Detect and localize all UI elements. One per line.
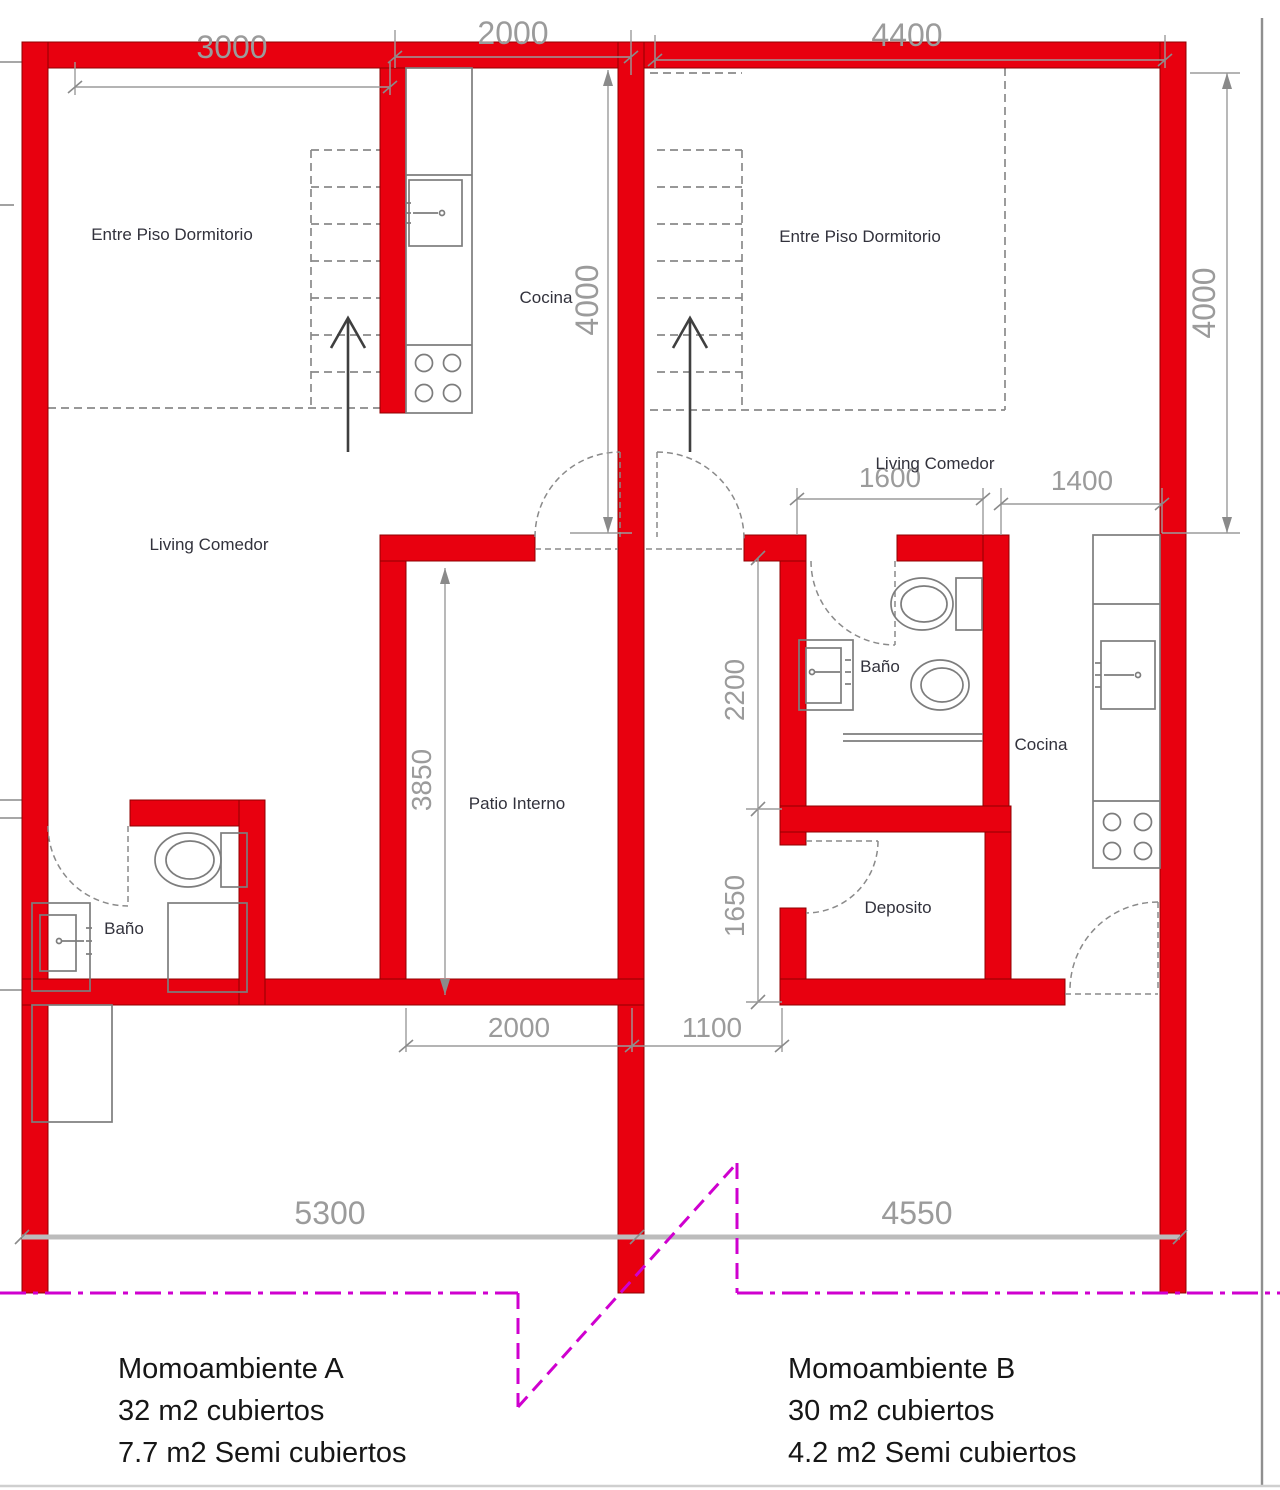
vanity-counter: [843, 734, 983, 741]
toilet-icon: [155, 833, 247, 887]
room-label-a-mezzanine: Entre Piso Dormitorio: [91, 225, 253, 244]
room-label-patio: Patio Interno: [469, 794, 565, 813]
door-b-entry: [646, 452, 744, 549]
dim-label: 5300: [294, 1195, 365, 1231]
room-label-b-living: Living Comedor: [875, 454, 994, 473]
unit-a-summary: Momoambiente A 32 m2 cubiertos 7.7 m2 Se…: [118, 1353, 407, 1469]
dim-totals: 5300 4550: [15, 1195, 1187, 1244]
wall-center-party: [618, 42, 644, 1293]
wall-b-bath-right: [983, 535, 1009, 832]
room-label-a-bath: Baño: [104, 919, 144, 938]
wall-right: [1160, 42, 1186, 1293]
room-label-b-storage: Deposito: [864, 898, 931, 917]
dim-label: 1400: [1051, 465, 1113, 496]
wall-a-kitchen: [380, 68, 406, 413]
dim-label: 3000: [196, 29, 267, 65]
stairs-up-arrow-icon: [673, 318, 707, 452]
unit-name: Momoambiente A: [118, 1353, 344, 1385]
stairs-up-arrow-icon: [331, 318, 365, 452]
unit-covered-area: 30 m2 cubiertos: [788, 1395, 994, 1427]
unit-semicovered-area: 4.2 m2 Semi cubiertos: [788, 1437, 1077, 1469]
floor-plan-drawing: 3000 2000 4400 4000: [0, 0, 1280, 1490]
wall-b-entry-stub: [744, 535, 806, 561]
door-a-entry: [535, 452, 620, 549]
unit-covered-area: 32 m2 cubiertos: [118, 1395, 324, 1427]
dim-label: 1650: [719, 875, 750, 937]
dim-label: 4000: [569, 264, 605, 335]
room-label-b-mezzanine: Entre Piso Dormitorio: [779, 227, 941, 246]
dim-label: 4550: [881, 1195, 952, 1231]
wall-a-bottom: [22, 979, 644, 1005]
bathroom-a-fixtures: [32, 833, 247, 992]
room-label-a-living: Living Comedor: [149, 535, 268, 554]
bidet-icon: [911, 660, 969, 710]
kitchen-counter-a: [405, 68, 472, 413]
stairs-b: [657, 150, 742, 452]
wall-a-patio-left: [380, 535, 406, 1005]
dim-label: 3850: [406, 749, 437, 811]
wall-b-storage-left-stub: [780, 832, 806, 845]
dim-label: 4400: [871, 17, 942, 53]
wall-b-divider: [780, 806, 1011, 832]
wall-a-patio-top: [380, 535, 535, 561]
dim-b-bath-depth: 2200 1650: [719, 551, 782, 1009]
room-label-a-kitchen: Cocina: [520, 288, 573, 307]
floor-plan-page: 3000 2000 4400 4000: [0, 0, 1280, 1490]
dim-label: 2200: [719, 659, 750, 721]
sink-icon: [799, 640, 853, 710]
unit-name: Momoambiente B: [788, 1353, 1015, 1385]
wall-b-bottom: [780, 979, 1065, 1005]
dim-b-kitchen-width: 1400: [994, 465, 1169, 535]
room-label-b-bath: Baño: [860, 657, 900, 676]
toilet-icon: [891, 578, 982, 630]
wall-b-bath-top: [897, 535, 983, 561]
unit-b-summary: Momoambiente B 30 m2 cubiertos 4.2 m2 Se…: [788, 1353, 1077, 1469]
dim-label: 2000: [477, 15, 548, 51]
wall-left: [22, 42, 48, 1293]
room-label-b-kitchen: Cocina: [1015, 735, 1068, 754]
wall-b-bath-left: [780, 535, 806, 832]
dim-label: 1100: [682, 1012, 742, 1043]
door-b-bath: [811, 561, 895, 645]
kitchen-counter-b: [1093, 535, 1160, 868]
dim-patio-width: 2000 1100: [399, 1008, 789, 1052]
door-b-entrance: [1065, 902, 1158, 994]
unit-semicovered-area: 7.7 m2 Semi cubiertos: [118, 1437, 407, 1469]
dim-label: 4000: [1186, 267, 1222, 338]
door-a-bath: [48, 826, 128, 906]
dim-patio-depth: 3850: [406, 568, 450, 995]
dim-label: 2000: [488, 1012, 550, 1043]
